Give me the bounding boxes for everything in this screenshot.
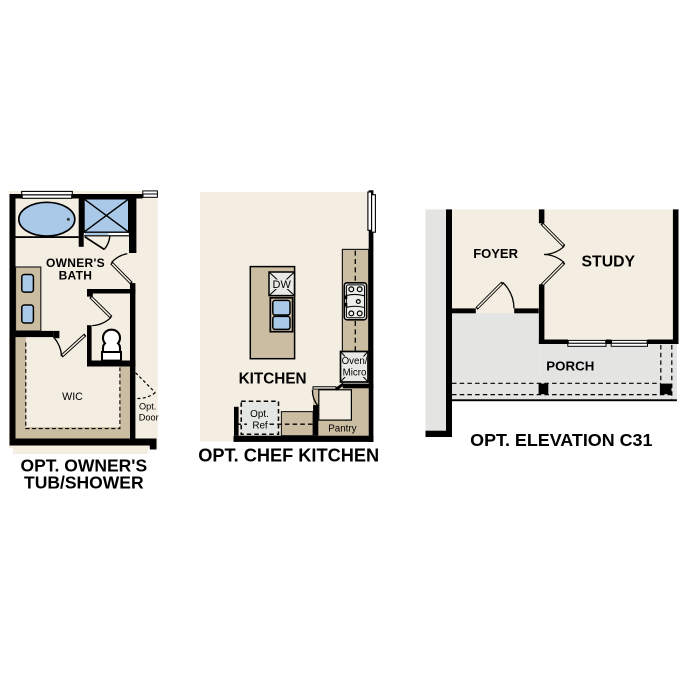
svg-text:KITCHEN: KITCHEN (239, 370, 307, 387)
svg-text:BATH: BATH (59, 269, 93, 283)
svg-text:Pantry: Pantry (328, 424, 356, 435)
svg-text:OPT. CHEF KITCHEN: OPT. CHEF KITCHEN (198, 446, 379, 466)
svg-text:FOYER: FOYER (473, 246, 518, 261)
svg-text:DW: DW (273, 279, 292, 291)
svg-text:WIC: WIC (62, 391, 83, 403)
svg-text:OPT. ELEVATION C31: OPT. ELEVATION C31 (470, 430, 652, 450)
svg-text:STUDY: STUDY (582, 254, 636, 271)
svg-text:Door: Door (139, 413, 159, 423)
svg-text:Ref: Ref (252, 420, 268, 431)
svg-text:TUB/SHOWER: TUB/SHOWER (24, 473, 144, 493)
svg-text:PORCH: PORCH (546, 359, 594, 374)
svg-text:Opt.: Opt. (139, 401, 156, 411)
svg-text:Micro: Micro (343, 367, 367, 378)
svg-text:Oven/: Oven/ (342, 356, 368, 367)
svg-text:Opt.: Opt. (250, 409, 269, 420)
